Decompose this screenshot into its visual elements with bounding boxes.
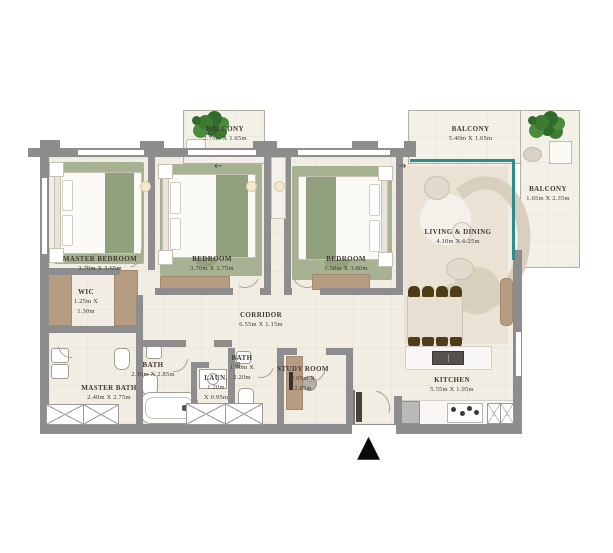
- pouf: [446, 258, 474, 280]
- wall-segment: [214, 340, 232, 347]
- wall-segment: [352, 141, 378, 149]
- wall-segment: [40, 424, 522, 434]
- room-label-kitchen: KITCHEN 5.55m X 1.95m: [392, 375, 512, 395]
- wall-segment: [48, 326, 136, 333]
- room-label-balcony-2: BALCONY 5.40m X 1.65m: [408, 124, 533, 144]
- wall-segment: [320, 288, 403, 295]
- door-leaf: [353, 390, 355, 424]
- glass-wall: [410, 159, 514, 162]
- burner-icon: [467, 406, 472, 411]
- nightstand: [158, 164, 173, 179]
- pillow: [170, 182, 181, 214]
- window: [188, 149, 256, 156]
- room-label-bedroom-2: BEDROOM 3.70m X 3.75m: [152, 254, 272, 274]
- wall-segment: [40, 140, 60, 149]
- wall-segment: [284, 288, 292, 295]
- window: [298, 149, 390, 156]
- headboard: [381, 179, 388, 260]
- balcony-box: [549, 141, 572, 164]
- wall-segment: [28, 148, 41, 157]
- room-label-master-bath: MASTER BATH 2.40m X 2.75m: [48, 383, 170, 403]
- wall-lamp-icon: [274, 181, 285, 192]
- headboard: [54, 175, 61, 254]
- balcony-pouf: [523, 147, 542, 162]
- room-label-corridor: CORRIDOR 6.55m X 1.15m: [200, 310, 322, 330]
- wall-lamp-icon: [246, 181, 257, 192]
- window: [515, 332, 522, 376]
- dining-chair: [436, 286, 448, 297]
- bed-throw: [216, 175, 248, 257]
- pillow: [170, 218, 181, 250]
- pillow: [62, 180, 73, 211]
- room-label-study: STUDY ROOM 2.05m X 2.85m: [253, 364, 353, 393]
- cabinet-hatch: [487, 403, 501, 424]
- dining-table: [407, 296, 463, 340]
- room-label-wic: WIC 1.25m X 1.30m: [46, 287, 126, 316]
- dining-chair: [450, 286, 462, 297]
- headboard: [162, 177, 169, 258]
- room-label-bedroom-3: BEDROOM 3.50m X 3.80m: [286, 254, 406, 274]
- room-label-balcony-1: BALCONY 2.75m X 1.65m: [185, 124, 265, 144]
- slide-arrow-right-icon: →: [398, 161, 406, 172]
- window: [41, 178, 48, 254]
- window-box-hatch: [83, 404, 119, 425]
- entrance-marker-icon: ▲: [357, 432, 380, 462]
- nightstand: [378, 166, 393, 181]
- wall-segment: [260, 288, 271, 295]
- slide-arrow-left-icon: ←: [214, 161, 222, 172]
- nightstand: [49, 162, 64, 177]
- burner-icon: [474, 410, 479, 415]
- window-box-hatch: [225, 403, 263, 425]
- pillow: [369, 220, 380, 252]
- wall-segment: [140, 141, 164, 149]
- wall-segment: [155, 288, 233, 295]
- armchair: [424, 176, 450, 200]
- wall-segment: [283, 348, 297, 355]
- room-label-balcony-3: BALCONY 1.65m X 2.35m: [515, 184, 581, 204]
- room-label-living-dining: LIVING & DINING 4.10m X 6.25m: [398, 227, 518, 247]
- dining-chair: [422, 286, 434, 297]
- wall-segment: [136, 340, 186, 347]
- wall-lamp-icon: [140, 181, 151, 192]
- window: [78, 149, 144, 156]
- sink: [51, 364, 69, 379]
- pillow: [62, 215, 73, 246]
- burner-icon: [451, 407, 456, 412]
- bed: [298, 176, 384, 260]
- burner-icon: [460, 411, 465, 416]
- wall-segment: [394, 396, 402, 424]
- island-sink: [432, 351, 464, 365]
- window-box-hatch: [46, 404, 84, 425]
- floor-plan: ← → ▲ MASTER BEDROOM 3.70m X 3.65m BEDRO…: [0, 0, 613, 553]
- cabinet-hatch: [500, 403, 514, 424]
- room-label-master-bedroom: MASTER BEDROOM 3.70m X 3.65m: [40, 254, 160, 274]
- dining-chair: [408, 286, 420, 297]
- bed: [166, 174, 256, 258]
- bed-throw: [306, 177, 336, 259]
- pillow: [369, 184, 380, 216]
- tv-console: [500, 278, 513, 326]
- window-box-hatch: [186, 403, 226, 425]
